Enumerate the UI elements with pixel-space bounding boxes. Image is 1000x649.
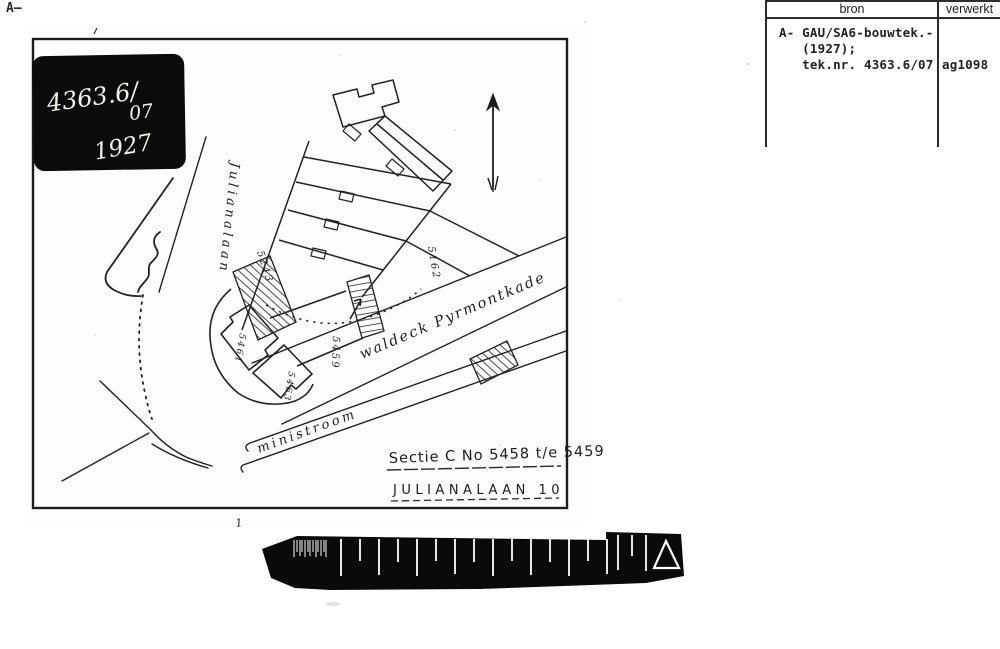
sectie-caption: Sectie C No 5458 t/e 5459: [389, 443, 605, 467]
stream-squiggle: [138, 232, 160, 292]
parcel-number: 5461: [232, 332, 247, 364]
stamp-suffix: 07: [128, 100, 156, 125]
street-label-julianalaan: Julianalaan: [215, 159, 242, 275]
hatched-building: [347, 275, 384, 338]
street-label-kade: waldeck Pyrmontkade: [357, 269, 548, 362]
archive-stamp-text: 4363.6/ 07 1927: [34, 56, 184, 170]
street-label-ministroom: ministroom: [255, 407, 359, 457]
map-captions: Sectie C No 5458 t/e 5459 JULIANALAAN 10: [387, 443, 605, 501]
hatched-building: [470, 341, 518, 384]
annex-tab: [339, 191, 354, 202]
scale-bar: 1: [235, 516, 684, 606]
parcel-number: 5459: [329, 336, 341, 370]
archive-stamp: 4363.6/ 07 1927: [34, 56, 184, 170]
dotted-boundary: [139, 295, 152, 419]
parcel-number: 5463: [281, 370, 296, 402]
stream-and-roads-west: [62, 137, 212, 481]
north-arrow-icon: [487, 94, 499, 192]
stamp-year: 1927: [92, 130, 155, 166]
address-caption: JULIANALAAN 10: [392, 483, 564, 498]
scale-bar-mark: 1: [235, 516, 244, 530]
scale-bar-body: [262, 532, 684, 590]
house-outline: [253, 345, 312, 398]
parcel-number: 5162: [425, 246, 442, 281]
hatched-buildings: [233, 256, 518, 384]
